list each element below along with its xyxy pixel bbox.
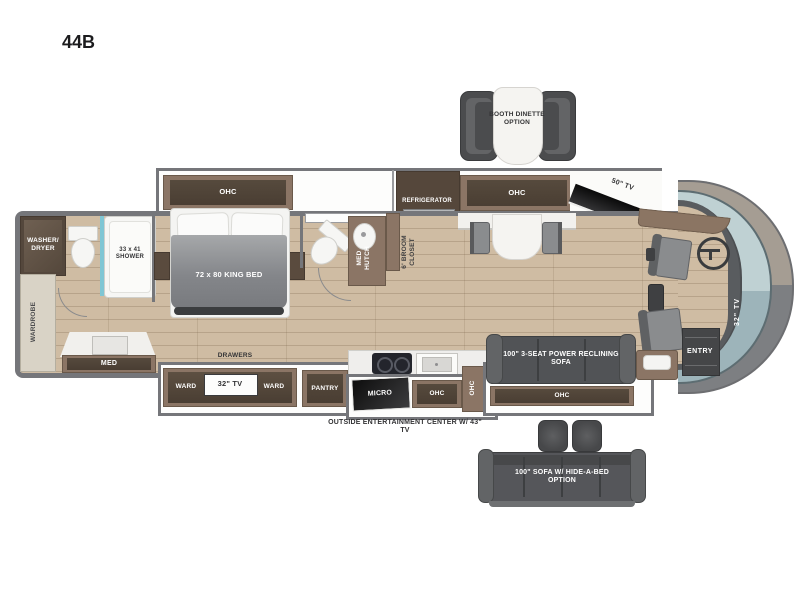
side-table (636, 350, 678, 380)
shower-label: 33 x 41 SHOWER (108, 247, 152, 261)
washer-dryer-label: WASHER/ DRYER (23, 237, 63, 252)
nightstand-left (154, 252, 170, 280)
entry-label: ENTRY (683, 348, 717, 356)
broom-closet (386, 213, 400, 271)
shower: 33 x 41 SHOWER (104, 216, 156, 298)
slide-divider (392, 170, 394, 212)
bedroom-tv: 32" TV (204, 374, 258, 396)
ward-tv-cabinet: WARD WARD 32" TV (163, 368, 297, 407)
booth-dinette-option: BOOTH DINETTE OPTION (460, 87, 574, 165)
reclining-sofa: 100" 3-SEAT POWER RECLINING SOFA (487, 336, 635, 384)
reclining-sofa-label: 100" 3-SEAT POWER RECLINING SOFA (501, 351, 621, 368)
med-hutch-label: MED HUTCH (356, 243, 376, 273)
console-small (646, 248, 655, 261)
bed-foot-bar (174, 307, 284, 315)
front-tv-label: 32" TV (734, 282, 754, 342)
rear-med-cabinet: MED (62, 355, 156, 373)
ward-right-label: WARD (256, 383, 292, 391)
ottoman-left-icon (538, 420, 568, 452)
wall-bedroom-hall (300, 213, 303, 268)
ottoman-right-icon (572, 420, 602, 452)
washer-dryer: WASHER/ DRYER (20, 216, 66, 276)
bedroom-tv-label: 32" TV (205, 380, 255, 389)
broom-closet-label: 6' BROOM CLOSET (401, 224, 419, 280)
rear-med-label: MED (101, 360, 117, 368)
microwave: MICRO (351, 377, 411, 412)
floorplan-canvas: 44B BOOTH DINETTE OPTION OHC REFRIGERATO… (0, 0, 800, 600)
wardrobe-label: WARDROBE (30, 289, 44, 355)
refrigerator-label: REFRIGERATOR (398, 198, 456, 205)
dinette-chair-left (470, 222, 490, 254)
outside-entertainment-label: OUTSIDE ENTERTAINMENT CENTER W/ 43" TV (325, 419, 485, 436)
king-bed: 72 x 80 KING BED (170, 208, 290, 318)
vanity-sink (92, 336, 128, 355)
bedroom-ohc-cabinet: OHC (163, 175, 293, 210)
cooktop-icon (372, 353, 412, 374)
booth-dinette-label: BOOTH DINETTE OPTION (489, 111, 545, 126)
hide-a-bed-sofa: 100" SOFA W/ HIDE-A-BED OPTION (480, 452, 644, 502)
plan-title: 44B (62, 32, 95, 53)
sofa-ohc-label: OHC (554, 392, 569, 400)
ohc-lower-label: OHC (429, 390, 444, 398)
kitchen-ohc-cabinet: OHC (460, 175, 574, 211)
dinette-chair-right (542, 222, 562, 254)
passenger-seat (637, 306, 684, 355)
kitchen-ohc-lower: OHC (412, 380, 462, 408)
drawers-label: DRAWERS (190, 352, 280, 360)
pantry-label: PANTRY (311, 385, 338, 393)
micro-label: MICRO (353, 389, 407, 400)
pantry-cabinet: PANTRY (302, 370, 348, 407)
dinette-table (492, 214, 542, 260)
steering-wheel-icon (697, 237, 730, 270)
kitchen-sink-icon (416, 353, 458, 376)
ohc-side-label: OHC (469, 373, 479, 403)
ward-left-label: WARD (168, 383, 204, 391)
entry-steps: ENTRY (682, 328, 720, 376)
sofa-ohc-cabinet: OHC (490, 386, 634, 406)
kitchen-ohc-label: OHC (508, 189, 525, 198)
bedroom-ohc-label: OHC (219, 188, 236, 197)
bed-label: 72 x 80 KING BED (180, 271, 278, 280)
hide-a-bed-label: 100" SOFA W/ HIDE-A-BED OPTION (502, 469, 622, 486)
